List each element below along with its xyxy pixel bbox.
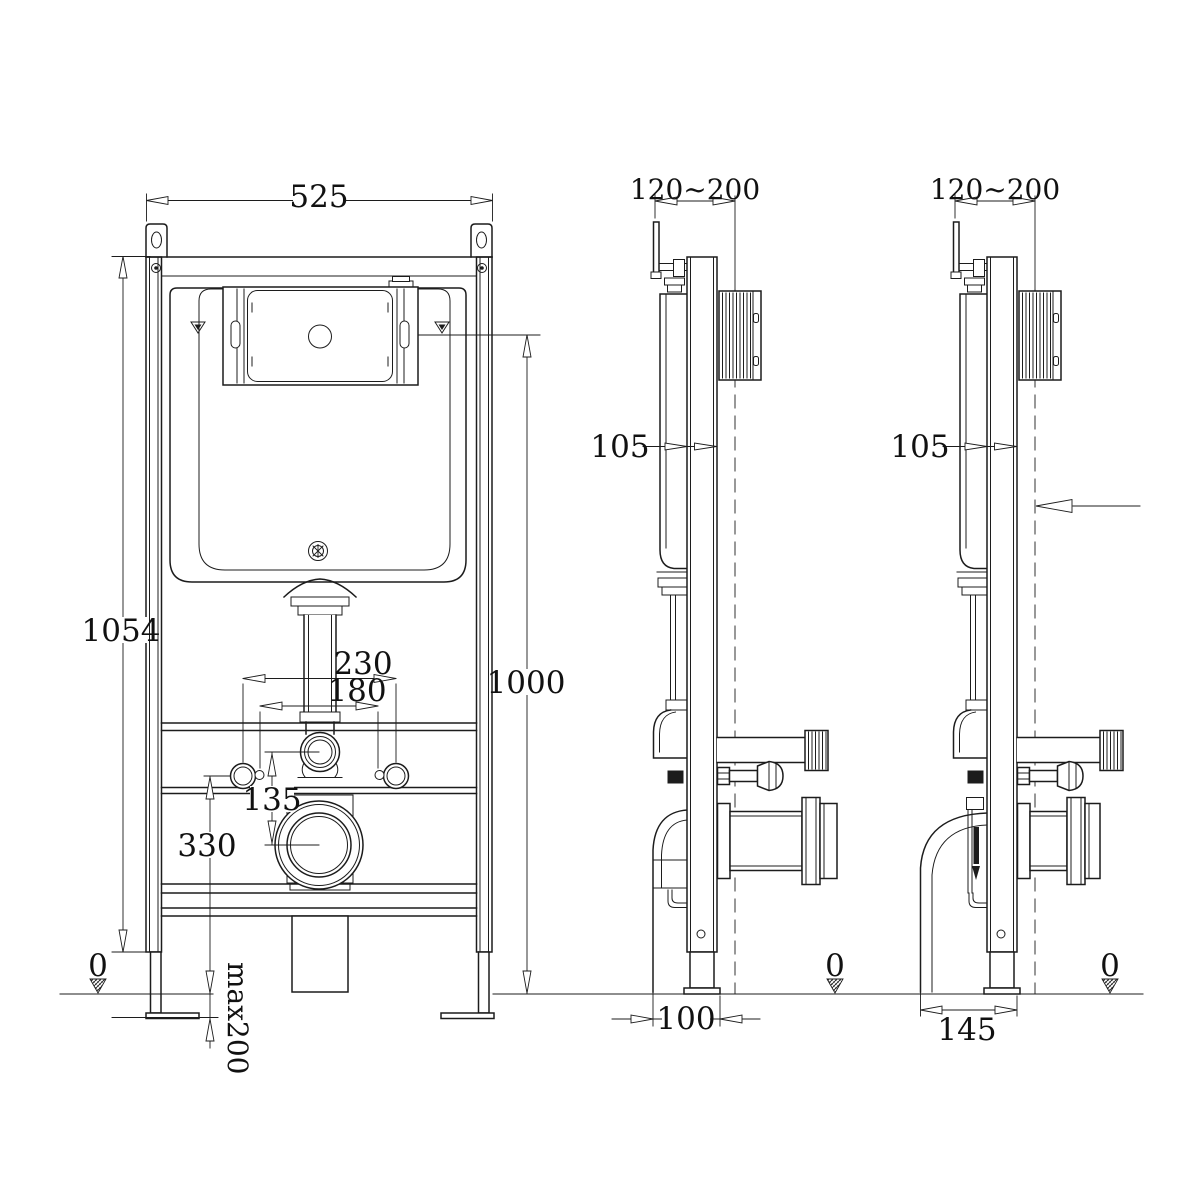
drain-elbow-a: [653, 810, 687, 992]
drain-connector-a: [718, 798, 838, 885]
flush-plate-shaft-b: [1019, 291, 1061, 380]
wall-tab-right: [471, 224, 492, 257]
drain-connector-b: [1018, 798, 1101, 885]
drain-duct-front: [292, 916, 348, 992]
hanger-bolt-a: [718, 762, 784, 791]
front-view: [146, 224, 494, 1019]
fixing-block-a: [668, 771, 684, 784]
toilet-frame-technical-drawing: 525 1054 1000 230 180 135 330: [0, 0, 1200, 1200]
wall-bracket-a: [651, 222, 687, 279]
dim-front-fixing-inner: 180: [327, 673, 386, 709]
wall-surface-leader: [1036, 500, 1140, 513]
flush-plate-box: [223, 287, 418, 385]
technical-drawing-page: 525 1054 1000 230 180 135 330: [0, 0, 1200, 1200]
side-b-floor-level-icon: [1102, 979, 1118, 993]
dim-a-depth-range: 120~200: [630, 173, 760, 206]
flush-plate-shaft-a: [719, 291, 761, 380]
hanger-bolt-b: [1018, 762, 1084, 791]
dim-front-flush-drain-offset: 135: [242, 782, 301, 818]
cistern-profile-a: [654, 278, 689, 758]
dim-front-max-extension: max200: [221, 962, 254, 1074]
wall-bracket-b: [951, 222, 987, 279]
dim-front-fixing-height: 330: [177, 828, 236, 864]
dim-a-drain-clearance: 100: [656, 1001, 715, 1037]
dim-b-frame-depth: 105: [890, 429, 949, 465]
dim-b-drain-clearance: 145: [937, 1012, 996, 1048]
fixing-block-b: [968, 771, 984, 784]
dim-front-flush-height: 1000: [487, 665, 566, 701]
flush-elbow-front: [265, 733, 342, 778]
side-view-left: 120~200 105 100 0: [590, 173, 844, 1037]
dim-b-depth-range: 120~200: [930, 173, 1060, 206]
side-a-floor-level-icon: [827, 979, 843, 993]
side-view-right: 120~200 105 145 0: [890, 173, 1140, 1048]
front-floor-level-icon: [90, 979, 106, 993]
dim-a-frame-depth: 105: [590, 429, 649, 465]
wall-tab-left: [146, 224, 167, 257]
dim-front-width: 525: [289, 179, 348, 215]
dim-front-frame-height: 1054: [82, 613, 161, 649]
cistern-profile-b: [954, 278, 989, 758]
